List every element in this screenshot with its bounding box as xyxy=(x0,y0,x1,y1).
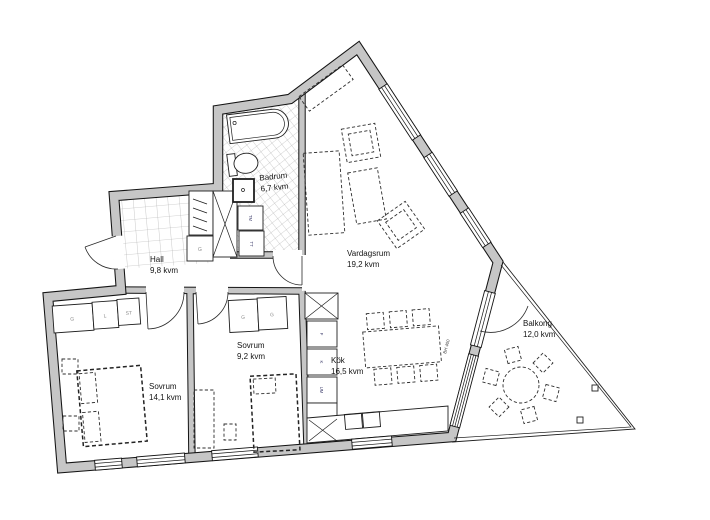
label-balkong: Balkong xyxy=(523,319,552,328)
closet-row-small-bedroom: G G xyxy=(228,297,288,333)
washer-label: TM xyxy=(248,215,253,222)
label-balkong-area: 12,0 kvm xyxy=(523,330,556,339)
label-sovrum-small: Sovrum xyxy=(237,341,265,350)
oven-label: UM xyxy=(319,387,324,394)
entry-door xyxy=(85,236,125,270)
label-kok: Kök xyxy=(331,356,346,365)
floor-plan-drawing: G L ST G G F K UM xyxy=(0,0,710,520)
closet-label-hall-g: G xyxy=(198,247,202,253)
label-sovrum-large: Sovrum xyxy=(149,382,177,391)
closet-label-g: G xyxy=(70,317,74,323)
fridge-label: K xyxy=(319,361,324,364)
laundry-machines: TM TT xyxy=(238,206,264,256)
closet-label-st: ST xyxy=(126,310,133,316)
hall-storage xyxy=(187,191,237,261)
label-hall-area: 9,8 kvm xyxy=(150,266,178,275)
label-vardagsrum: Vardagsrum xyxy=(347,249,390,258)
label-sovrum-large-area: 14,1 kvm xyxy=(149,393,182,402)
label-sovrum-small-area: 9,2 kvm xyxy=(237,352,265,361)
dryer-label: TT xyxy=(249,241,254,247)
label-hall: Hall xyxy=(150,255,164,264)
label-kok-area: 16,5 kvm xyxy=(331,367,364,376)
freezer-label: F xyxy=(319,333,324,336)
bathroom-sink xyxy=(233,179,254,202)
closet-label-g1: G xyxy=(241,315,245,321)
floor-plan-page: G L ST G G F K UM xyxy=(0,0,710,520)
closet-label-g2: G xyxy=(270,312,274,318)
label-vardagsrum-area: 19,2 kvm xyxy=(347,260,380,269)
window-bedroom-large-1 xyxy=(95,458,123,470)
